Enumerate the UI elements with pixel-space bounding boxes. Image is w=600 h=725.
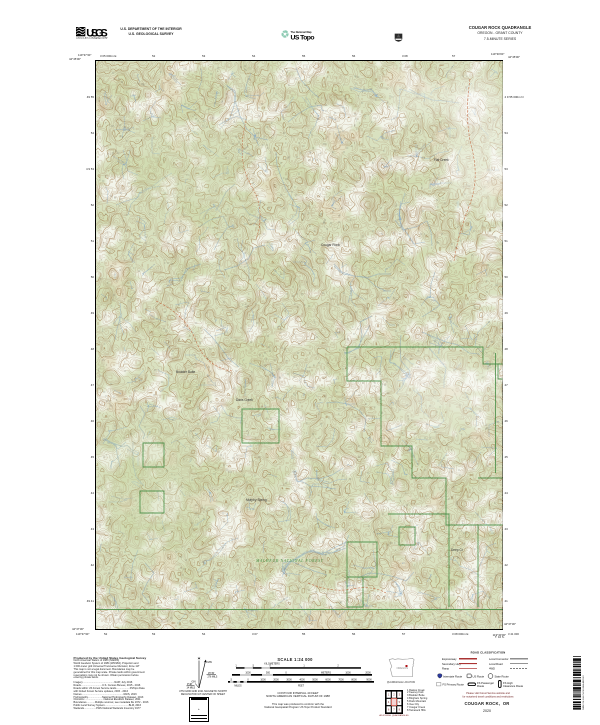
svg-text:.5: .5 (252, 665, 255, 668)
svg-text:Clearance Route: Clearance Route (503, 684, 524, 688)
svg-text:3000: 3000 (286, 678, 292, 681)
svg-text:2: 2 (337, 665, 339, 668)
svg-text:0: 0 (247, 678, 249, 681)
svg-text:GN: GN (192, 680, 196, 684)
svg-text:5000: 5000 (312, 678, 318, 681)
svg-text:ISBN 978-1-60-754760 NGA REF: ISBN 978-1-60-754760 NGA REF NO (581, 675, 584, 710)
svg-text:1000: 1000 (245, 671, 251, 674)
svg-text:State Route: State Route (495, 675, 510, 679)
svg-text:5: 5 (399, 700, 401, 704)
svg-text:MALHEUR NATIONAL FOREST: MALHEUR NATIONAL FOREST (255, 558, 324, 563)
svg-text:Local Road: Local Road (489, 662, 503, 666)
svg-text:1: 1 (388, 693, 390, 697)
svg-text:KILOMETERS: KILOMETERS (264, 663, 280, 666)
svg-text:7000: 7000 (338, 678, 344, 681)
svg-text:Murphy Spring: Murphy Spring (246, 498, 267, 502)
svg-text:1: 1 (303, 665, 305, 668)
svg-text:4: 4 (388, 700, 390, 704)
svg-text:9000: 9000 (366, 678, 372, 681)
svg-text:15°30´: 15°30´ (208, 672, 215, 675)
svg-text:8: 8 (399, 707, 401, 711)
svg-text:8000: 8000 (351, 678, 357, 681)
svg-text:Secondary Hwy: Secondary Hwy (442, 662, 461, 666)
svg-text:Deep Cr: Deep Cr (451, 548, 464, 552)
svg-text:2: 2 (393, 693, 395, 697)
svg-text:Local Connector: Local Connector (489, 657, 509, 661)
svg-text:FEET: FEET (298, 685, 305, 688)
svg-text:2000: 2000 (365, 671, 371, 674)
svg-text:MILES: MILES (234, 685, 242, 688)
svg-text:Dans Creek: Dans Creek (236, 398, 253, 402)
svg-text:Boulder Butte: Boulder Butte (176, 370, 196, 374)
svg-text:.5: .5 (230, 678, 233, 681)
svg-text:276 MILS: 276 MILS (208, 677, 218, 679)
svg-text:Flat Creek: Flat Creek (434, 158, 449, 162)
svg-text:Route: Route (477, 684, 485, 688)
svg-text:Cougar Rock: Cougar Rock (321, 243, 340, 247)
svg-text:1: 1 (235, 665, 237, 668)
svg-text:Expressway: Expressway (442, 657, 457, 661)
svg-text:for motorized travel condition: for motorized travel conditions and rest… (463, 695, 515, 698)
svg-text:500: 500 (266, 671, 271, 674)
svg-text:7: 7 (393, 707, 395, 711)
svg-text:MN: MN (208, 660, 212, 664)
svg-text:4000: 4000 (299, 678, 305, 681)
svg-text:METERS: METERS (321, 671, 331, 674)
svg-text:0°48´: 0°48´ (187, 683, 193, 686)
svg-text:US Topo: US Topo (291, 35, 315, 42)
svg-text:3: 3 (399, 693, 401, 697)
svg-text:Ramp: Ramp (442, 667, 450, 671)
svg-text:Interstate Route: Interstate Route (443, 675, 463, 679)
svg-text:1000: 1000 (260, 678, 266, 681)
svg-text:4WD: 4WD (489, 667, 495, 671)
svg-text:2000: 2000 (273, 678, 279, 681)
svg-text:6000: 6000 (325, 678, 331, 681)
svg-text:US Route: US Route (473, 675, 485, 679)
svg-text:✶: ✶ (197, 656, 201, 661)
svg-text:1000: 1000 (345, 671, 351, 674)
svg-text:FS Primary Route: FS Primary Route (443, 682, 465, 686)
svg-text:ROAD CLASSIFICATION: ROAD CLASSIFICATION (471, 651, 506, 655)
svg-text:6: 6 (388, 707, 390, 711)
svg-text:0: 0 (285, 671, 287, 674)
